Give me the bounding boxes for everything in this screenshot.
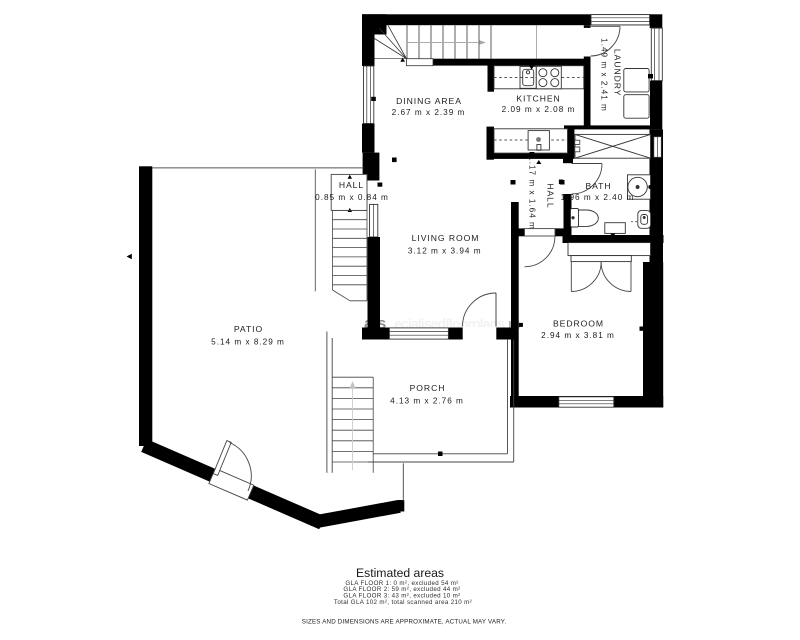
- svg-text:4.13 m x 2.76 m: 4.13 m x 2.76 m: [390, 396, 464, 405]
- svg-text:2.94 m x 3.81 m: 2.94 m x 3.81 m: [541, 331, 615, 340]
- svg-text:PATIO: PATIO: [234, 324, 263, 334]
- svg-text:3.12 m x 3.94 m: 3.12 m x 3.94 m: [408, 246, 482, 255]
- svg-text:2.09 m x 2.08 m: 2.09 m x 2.08 m: [502, 105, 576, 114]
- svg-text:LIVING ROOM: LIVING ROOM: [412, 233, 480, 243]
- svg-text:5.14 m x 8.29 m: 5.14 m x 8.29 m: [211, 337, 285, 346]
- svg-text:1.49 m x 2.41 m: 1.49 m x 2.41 m: [600, 38, 609, 112]
- svg-text:HALL: HALL: [339, 180, 364, 190]
- svg-text:Estimated areas: Estimated areas: [356, 566, 444, 580]
- svg-text:1.17 m x 1.64 m: 1.17 m x 1.64 m: [528, 156, 537, 230]
- svg-text:SIZES AND DIMENSIONS ARE APPRO: SIZES AND DIMENSIONS ARE APPROXIMATE, AC…: [302, 619, 507, 626]
- svg-text:DINING AREA: DINING AREA: [396, 96, 462, 106]
- svg-text:2.67 m x 2.39 m: 2.67 m x 2.39 m: [392, 108, 466, 117]
- svg-text:0.85 m x 0.84 m: 0.85 m x 0.84 m: [315, 193, 389, 202]
- svg-text:PORCH: PORCH: [410, 383, 446, 393]
- svg-text:LAUNDRY: LAUNDRY: [612, 49, 622, 97]
- svg-text:BATH: BATH: [585, 181, 611, 191]
- svg-text:KITCHEN: KITCHEN: [516, 93, 560, 103]
- svg-text:HALL: HALL: [546, 183, 556, 208]
- svg-text:1.96 m x 2.40 m: 1.96 m x 2.40 m: [561, 193, 635, 202]
- svg-text:Total GLA 102 m², total scanne: Total GLA 102 m², total scanned area 210…: [334, 599, 472, 606]
- svg-text:BEDROOM: BEDROOM: [553, 318, 604, 328]
